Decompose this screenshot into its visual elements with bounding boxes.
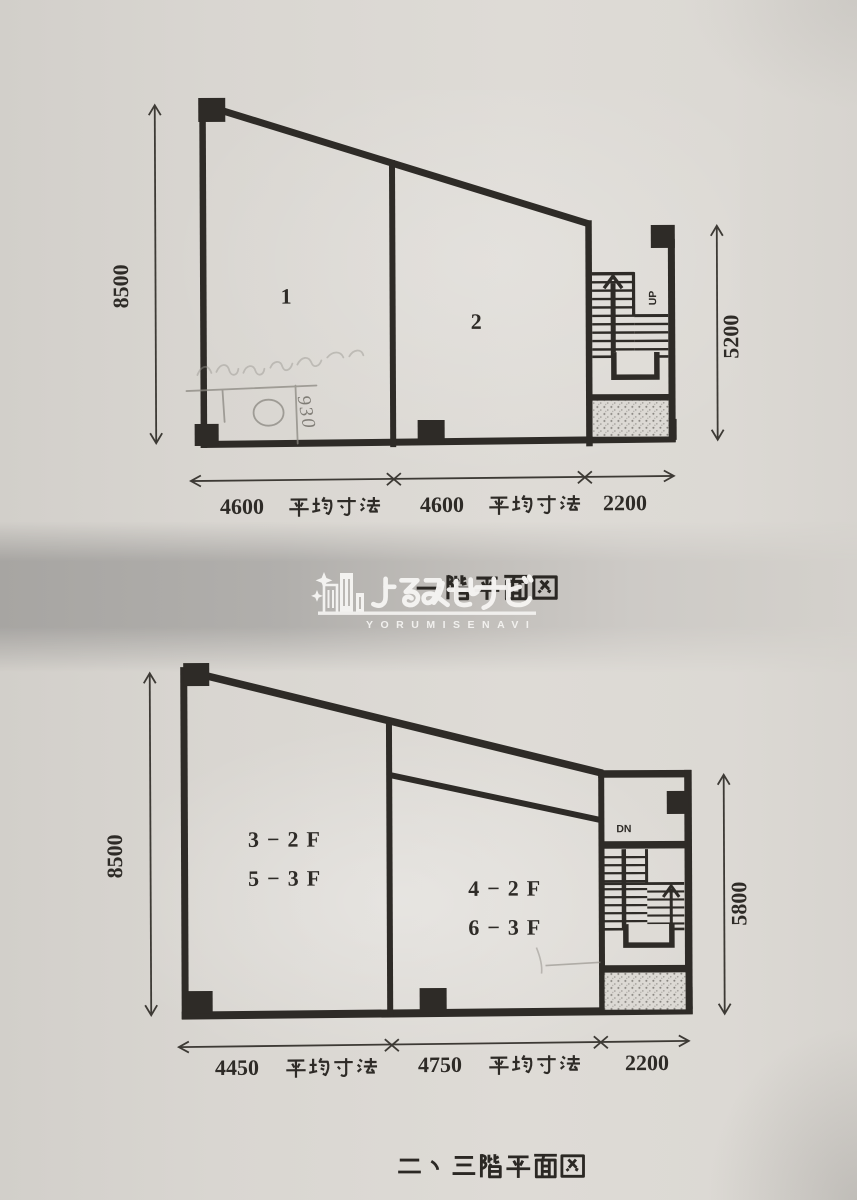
svg-text:3−2F: 3−2F [248,826,328,851]
svg-text:5200: 5200 [718,315,743,359]
svg-text:4−2F: 4−2F [468,876,548,901]
svg-text:1: 1 [281,284,292,309]
svg-text:6−3F: 6−3F [468,915,548,940]
svg-text:4750: 4750 [418,1052,462,1077]
svg-text:2200: 2200 [625,1050,669,1075]
svg-text:8500: 8500 [108,264,133,308]
svg-text:5800: 5800 [726,882,751,926]
svg-text:2: 2 [471,309,482,334]
svg-text:YORUMISENAVI: YORUMISENAVI [366,619,536,631]
svg-text:UP: UP [647,291,659,306]
svg-text:2200: 2200 [603,490,647,515]
svg-text:4600: 4600 [420,492,464,517]
svg-text:4600: 4600 [220,494,264,519]
svg-text:5−3F: 5−3F [248,865,328,890]
svg-text:8500: 8500 [102,834,127,878]
svg-text:DN: DN [616,823,631,835]
svg-text:4450: 4450 [215,1055,259,1080]
